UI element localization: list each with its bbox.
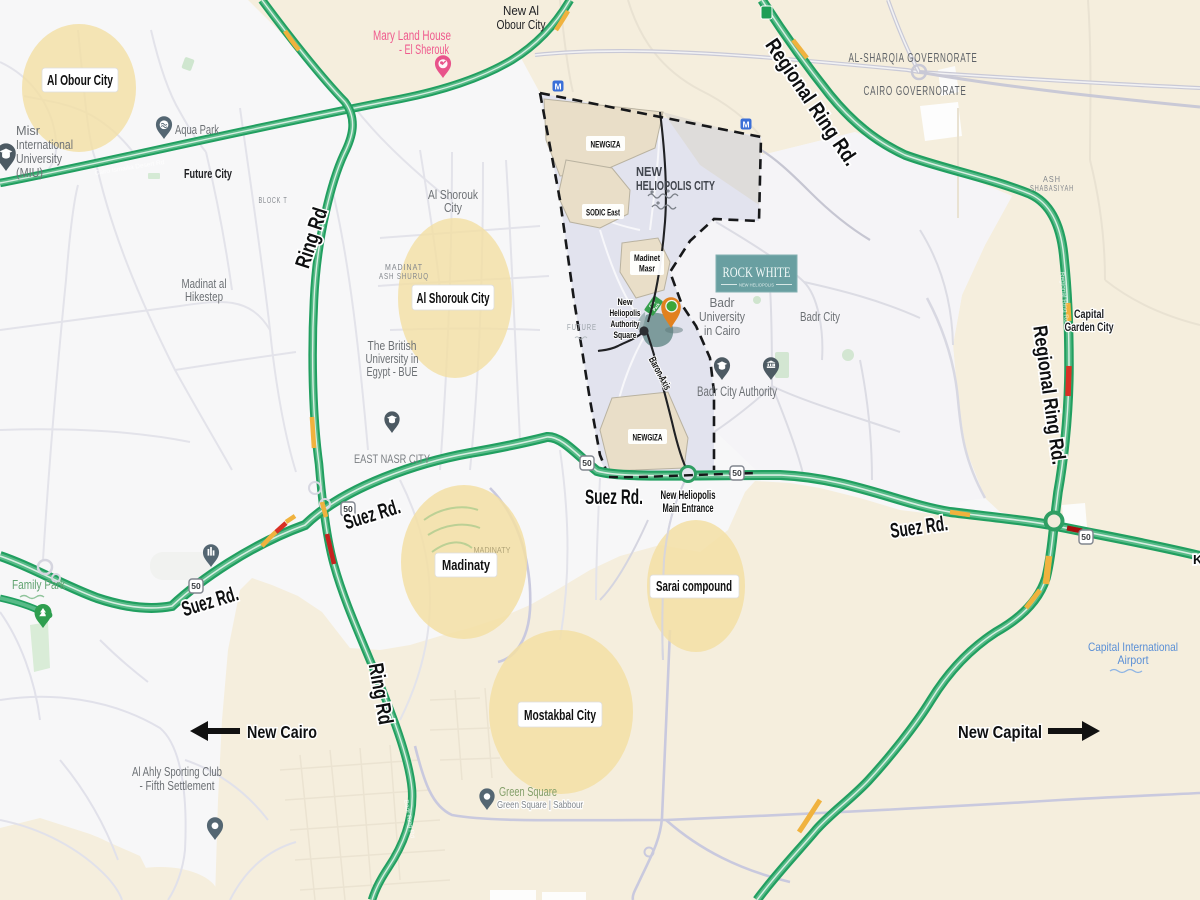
svg-text:M: M bbox=[742, 119, 749, 129]
svg-text:Al Ahly Sporting Club: Al Ahly Sporting Club bbox=[132, 765, 222, 779]
svg-text:50: 50 bbox=[732, 468, 742, 478]
svg-text:M: M bbox=[554, 81, 561, 91]
svg-text:Obour City: Obour City bbox=[497, 17, 546, 32]
svg-text:Capital: Capital bbox=[1074, 307, 1104, 321]
svg-text:Garden City: Garden City bbox=[1065, 320, 1114, 334]
svg-text:NEW: NEW bbox=[636, 164, 663, 179]
svg-text:Madinaty: Madinaty bbox=[442, 557, 490, 574]
svg-text:New Capital: New Capital bbox=[958, 722, 1042, 742]
svg-text:50: 50 bbox=[1081, 532, 1091, 542]
svg-text:Badr City: Badr City bbox=[800, 309, 840, 324]
svg-text:Family Park: Family Park bbox=[12, 578, 66, 592]
svg-text:Badr: Badr bbox=[710, 295, 736, 310]
svg-text:Masr: Masr bbox=[639, 264, 655, 274]
svg-text:Green Square: Green Square bbox=[499, 785, 557, 799]
svg-text:Future City: Future City bbox=[184, 167, 232, 181]
svg-text:International: International bbox=[16, 138, 73, 152]
svg-text:AL-SHARQIA GOVERNORATE: AL-SHARQIA GOVERNORATE bbox=[849, 51, 978, 65]
svg-text:New: New bbox=[618, 297, 633, 308]
svg-text:Badr City Authority: Badr City Authority bbox=[697, 384, 777, 399]
svg-text:Aqua Park: Aqua Park bbox=[175, 123, 220, 137]
svg-text:Authority: Authority bbox=[611, 319, 640, 330]
svg-text:Mary Land House: Mary Land House bbox=[373, 28, 451, 43]
svg-text:The British: The British bbox=[368, 339, 417, 353]
svg-text:NEWGIZA: NEWGIZA bbox=[591, 140, 621, 150]
svg-text:Square: Square bbox=[614, 330, 637, 341]
svg-text:New Al: New Al bbox=[503, 3, 539, 18]
svg-text:University: University bbox=[16, 152, 63, 166]
svg-text:Al Shorouk City: Al Shorouk City bbox=[417, 290, 490, 307]
svg-text:SODIC East: SODIC East bbox=[586, 208, 620, 218]
svg-text:FUTURE: FUTURE bbox=[567, 323, 597, 332]
svg-text:Suez Rd.: Suez Rd. bbox=[585, 486, 643, 509]
svg-text:NEWGIZA: NEWGIZA bbox=[633, 433, 663, 443]
svg-text:BLOCK T: BLOCK T bbox=[259, 195, 288, 205]
svg-text:Egypt - BUE: Egypt - BUE bbox=[367, 365, 418, 379]
svg-text:Main Entrance: Main Entrance bbox=[663, 503, 714, 515]
svg-text:50: 50 bbox=[582, 458, 592, 468]
svg-text:EAST NASR CITY: EAST NASR CITY bbox=[354, 454, 430, 466]
svg-text:in Cairo: in Cairo bbox=[704, 323, 740, 338]
svg-text:HELIOPOLIS CITY: HELIOPOLIS CITY bbox=[636, 178, 715, 193]
svg-text:Al Obour City: Al Obour City bbox=[47, 72, 113, 89]
svg-text:Hikestep: Hikestep bbox=[185, 290, 223, 304]
svg-text:Mostakbal City: Mostakbal City bbox=[524, 707, 596, 724]
svg-text:Madinet: Madinet bbox=[634, 253, 660, 263]
svg-text:Airport: Airport bbox=[1118, 653, 1150, 667]
svg-text:50: 50 bbox=[191, 581, 201, 591]
svg-text:ASH SHURUQ: ASH SHURUQ bbox=[379, 271, 429, 281]
svg-text:Al Shorouk: Al Shorouk bbox=[428, 188, 479, 202]
svg-text:Sarai compound: Sarai compound bbox=[656, 579, 732, 595]
svg-text:- El Sherouk: - El Sherouk bbox=[399, 42, 449, 57]
svg-text:CAIRO GOVERNORATE: CAIRO GOVERNORATE bbox=[864, 84, 967, 98]
svg-text:Misr: Misr bbox=[16, 124, 40, 138]
svg-text:ROCK WHITE: ROCK WHITE bbox=[723, 265, 791, 281]
svg-text:New Heliopolis: New Heliopolis bbox=[661, 490, 716, 502]
svg-text:New Cairo: New Cairo bbox=[247, 722, 317, 742]
svg-text:University: University bbox=[699, 309, 745, 324]
svg-text:University in: University in bbox=[366, 352, 419, 366]
svg-text:Capital International: Capital International bbox=[1088, 640, 1178, 654]
svg-text:Green Square | Sabbour: Green Square | Sabbour bbox=[497, 799, 583, 811]
svg-text:NEW HELIOPOLIS: NEW HELIOPOLIS bbox=[739, 283, 774, 288]
svg-text:(MIU): (MIU) bbox=[16, 166, 43, 180]
svg-text:SHABASIYAH: SHABASIYAH bbox=[1030, 183, 1074, 193]
svg-text:City: City bbox=[444, 201, 463, 215]
svg-text:Madinat al: Madinat al bbox=[182, 277, 227, 291]
svg-text:- Fifth Settlement: - Fifth Settlement bbox=[140, 779, 215, 793]
svg-text:K: K bbox=[1193, 552, 1200, 567]
svg-text:Heliopolis: Heliopolis bbox=[610, 308, 641, 319]
